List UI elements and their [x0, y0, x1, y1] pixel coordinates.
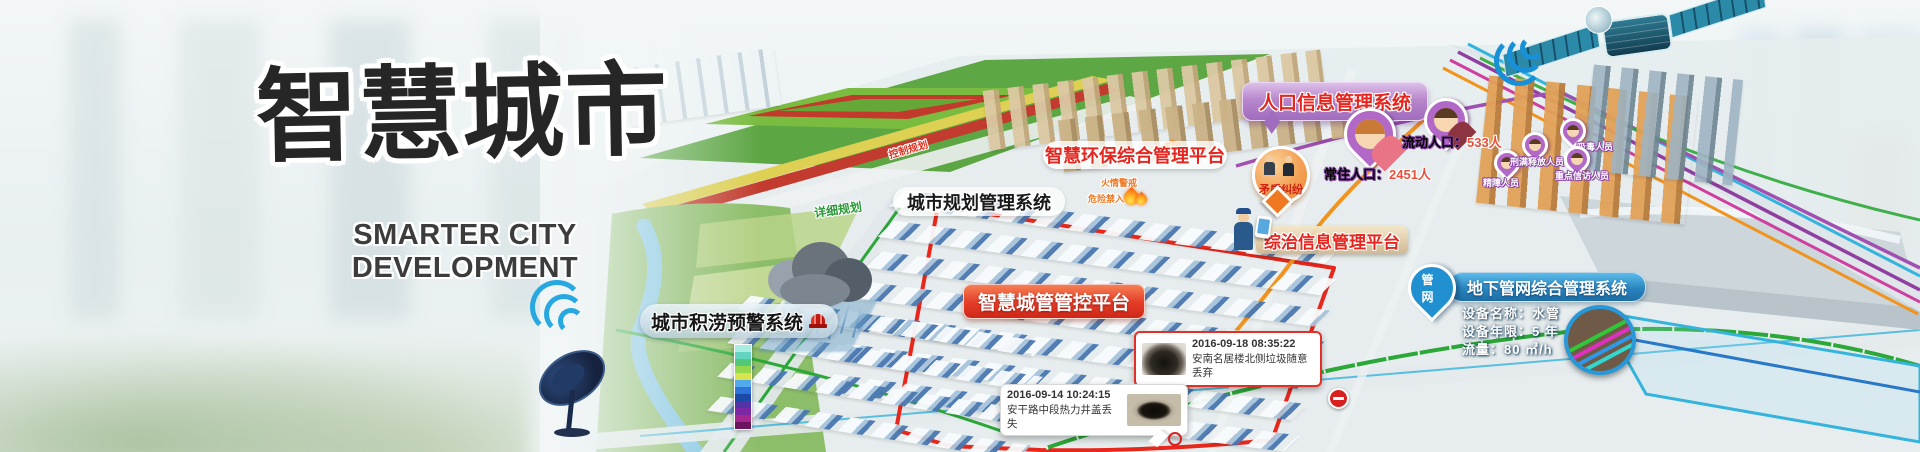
page-subtitle: SMARTER CITY DEVELOPMENT	[258, 219, 672, 285]
resident-population-stat: 常住人口：2451人	[1324, 164, 1431, 183]
garbage-photo	[1142, 343, 1186, 375]
pipe-detail-name: 设备名称：水管	[1462, 303, 1560, 322]
page-title: 智慧城市	[251, 54, 673, 174]
floating-population-stat: 流动人口：533人	[1402, 132, 1502, 151]
event-callout-garbage: 2016-09-18 08:35:22 安南名居楼北侧垃圾随意丢弃	[1134, 331, 1322, 387]
smart-city-banner: 智慧城市 SMARTER CITY DEVELOPMENT	[0, 0, 1920, 452]
satellite-dish-icon	[528, 332, 614, 452]
label-env-platform: 智慧环保综合管理平台	[1043, 141, 1227, 169]
manhole-photo	[1127, 394, 1181, 426]
person-tag: 精障人员	[1483, 176, 1519, 189]
pipe-pin-text: 管网	[1422, 271, 1443, 305]
event-time: 2016-09-14 10:24:15	[1007, 388, 1121, 404]
waterlog-label-text: 城市积涝预警系统	[651, 308, 803, 335]
siren-icon	[809, 314, 827, 329]
event-location-marker	[1168, 432, 1182, 446]
label-city-planning-system: 城市规划管理系统	[893, 187, 1065, 216]
rainfall-legend	[734, 344, 752, 430]
person-tag: 刑满释放人员	[1510, 155, 1564, 168]
label-pipe-network-system: 地下管网综合管理系统	[1448, 272, 1646, 302]
danger-no-entry-text: 危险禁入	[1088, 192, 1124, 205]
event-time: 2016-09-18 08:35:22	[1192, 337, 1314, 353]
person-tag: 重点信访人员	[1555, 169, 1609, 182]
pipe-detail-flow: 流量：80 ㎥/h	[1462, 339, 1553, 358]
event-callout-manhole: 2016-09-14 10:24:15 安干路中段热力井盖丢失	[1000, 384, 1188, 436]
label-zongzhi-platform: 综治信息管理平台	[1256, 226, 1408, 254]
no-entry-icon	[1328, 388, 1349, 409]
floating-population-value: 533人	[1467, 135, 1502, 150]
satellite-signal-icon	[1492, 36, 1544, 88]
event-desc: 安干路中段热力井盖丢失	[1007, 404, 1121, 431]
event-desc: 安南名居楼北侧垃圾随意丢弃	[1192, 353, 1314, 380]
pipe-magnifier	[1564, 305, 1636, 375]
floating-population-label: 流动人口：	[1402, 135, 1467, 150]
pipe-detail-age: 设备年限：5 年	[1462, 321, 1559, 340]
resident-population-value: 2451人	[1389, 167, 1431, 182]
resident-population-label: 常住人口：	[1324, 167, 1389, 182]
phone-icon	[1255, 215, 1273, 239]
dish-signal-icon	[532, 282, 584, 334]
label-waterlog-system: 城市积涝预警系统	[640, 304, 838, 338]
label-chengguan-platform: 智慧城管管控平台	[963, 284, 1145, 319]
label-population-system: 人口信息管理系统	[1242, 82, 1428, 121]
